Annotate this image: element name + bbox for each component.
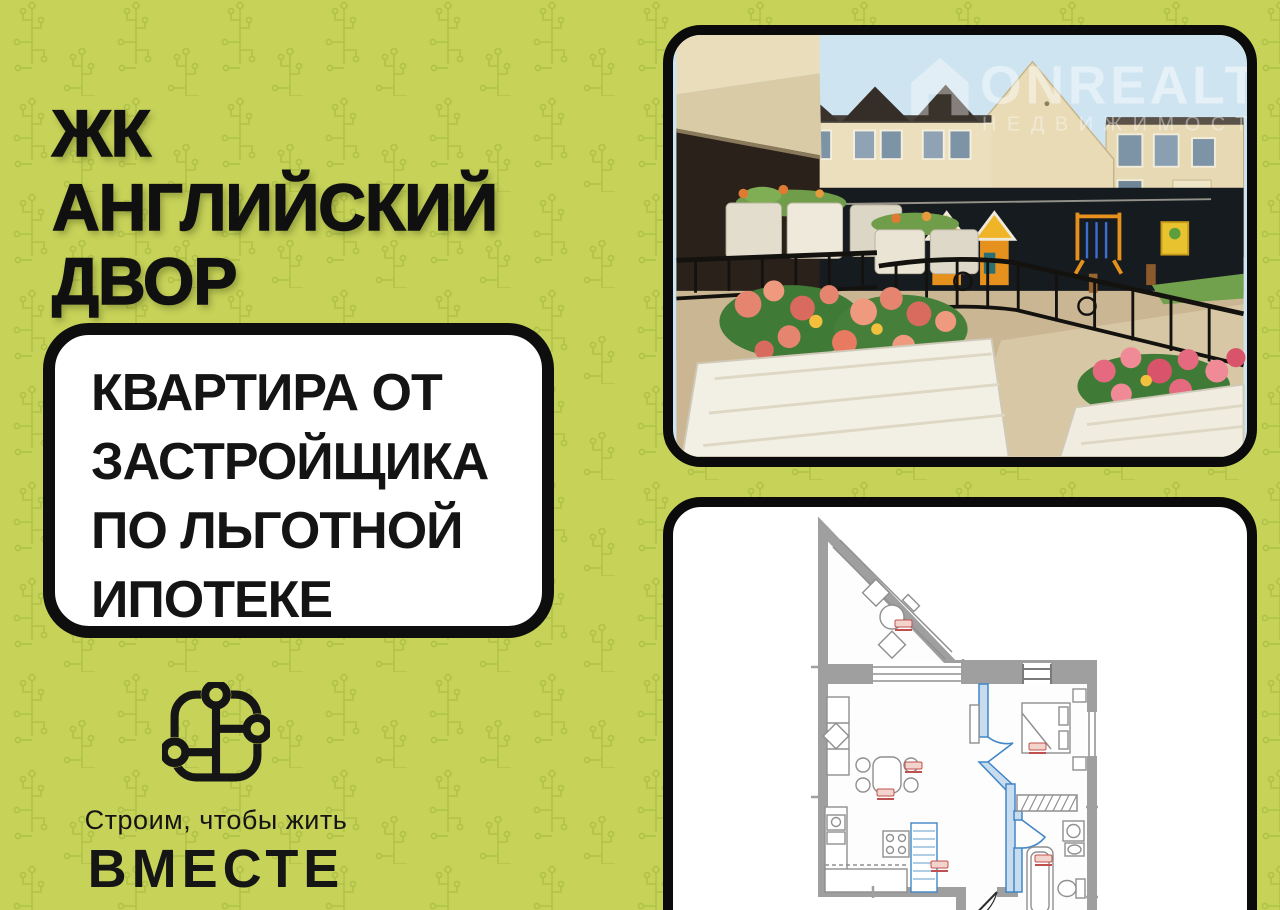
page-title-line1: ЖК <box>52 96 652 170</box>
floorplan-card <box>663 497 1257 910</box>
page-title: ЖК АНГЛИЙСКИЙ ДВОР <box>52 96 652 318</box>
courtyard-photo-card: ONREALT НЕДВИЖИМОСТЬ <box>663 25 1257 467</box>
courtyard-photo: ONREALT НЕДВИЖИМОСТЬ <box>673 35 1247 457</box>
banner: ЖК АНГЛИЙСКИЙ ДВОР КВАРТИРА ОТ ЗАСТРОЙЩИ… <box>0 0 1280 910</box>
fridge-icon <box>911 823 937 892</box>
sink-icon <box>832 818 841 827</box>
play-cube-icon <box>1161 222 1188 254</box>
stove-icon <box>883 831 909 857</box>
developer-brand: Строим, чтобы жить ВМЕСТЕ <box>38 682 394 900</box>
brand-tagline: Строим, чтобы жить <box>38 805 394 836</box>
watermark-brand: ONREALT <box>980 57 1247 116</box>
offer-card: КВАРТИРА ОТ ЗАСТРОЙЩИКА ПО ЛЬГОТНОЙ ИПОТ… <box>43 323 554 638</box>
offer-line: ПО ЛЬГОТНОЙ <box>91 497 532 566</box>
tv-stand-icon <box>970 705 979 743</box>
nightstand-icon <box>1073 757 1086 770</box>
toilet-icon <box>1058 879 1085 898</box>
wardrobe-icon <box>1017 795 1077 811</box>
vmeste-logo-icon <box>162 682 270 790</box>
offer-line: ЗАСТРОЙЩИКА <box>91 428 532 497</box>
offer-line: ИПОТЕКЕ <box>91 566 532 635</box>
brand-name: ВМЕСТЕ <box>38 838 394 900</box>
floorplan <box>673 507 1247 910</box>
sink-icon <box>1065 843 1084 856</box>
page-title-line2: АНГЛИЙСКИЙ ДВОР <box>52 170 652 318</box>
washing-machine-icon <box>1063 821 1084 841</box>
nightstand-icon <box>1073 689 1086 702</box>
watermark-subtitle: НЕДВИЖИМОСТЬ <box>982 113 1247 135</box>
offer-line: КВАРТИРА ОТ <box>91 359 532 428</box>
